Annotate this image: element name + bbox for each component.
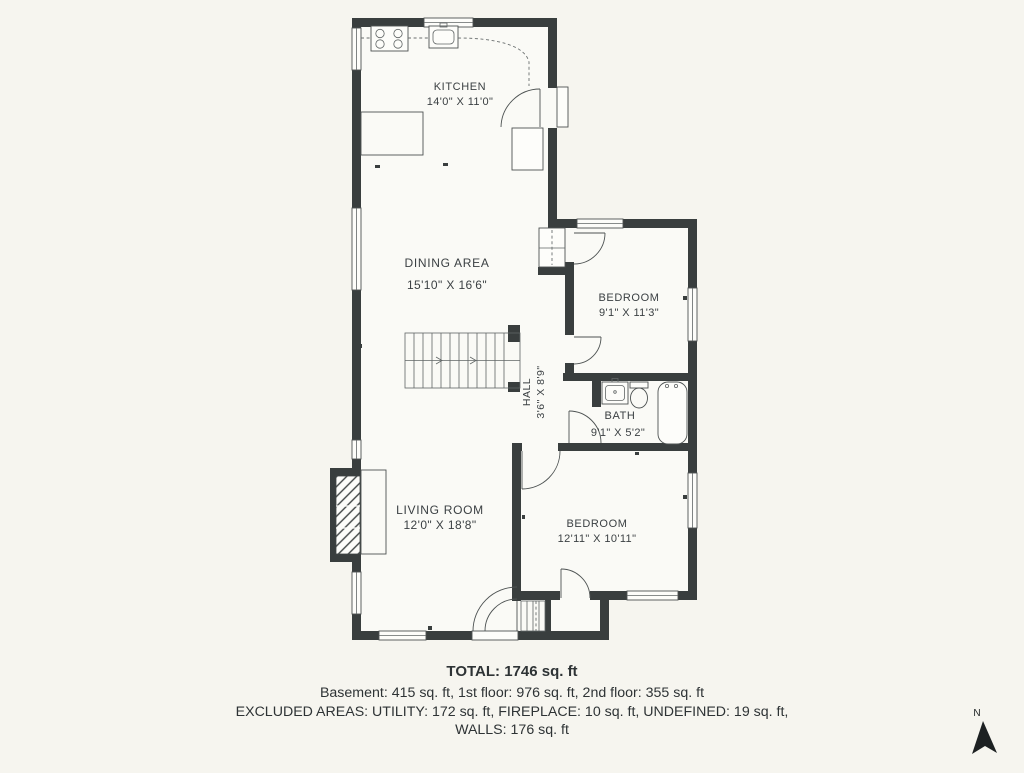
window [352,440,361,459]
bedroom1-dims: 9'1" X 11'3" [599,307,659,319]
window [352,28,361,70]
floors [352,18,697,640]
kitchen-label: KITCHEN [434,81,486,93]
kitchen-sink-icon [429,23,458,48]
bedroom1-label: BEDROOM [598,292,659,304]
total-area-text: TOTAL: 1746 sq. ft [0,663,1024,680]
walls-area-text: WALLS: 176 sq. ft [0,721,1024,740]
window [627,591,678,600]
door-threshold [472,631,518,640]
window [688,288,697,341]
dining-dims: 15'10" X 16'6" [407,278,487,292]
window [379,631,426,640]
hall-dims: 3'6" X 8'9" [535,365,547,418]
living-dims: 12'0" X 18'8" [403,518,476,532]
exterior-step [557,87,568,127]
bedroom-closet [539,228,565,267]
bedroom2-label: BEDROOM [566,518,627,530]
floors-area-text: Basement: 415 sq. ft, 1st floor: 976 sq.… [0,684,1024,703]
area-summary: TOTAL: 1746 sq. ft Basement: 415 sq. ft,… [0,663,1024,740]
bath-sink-icon [602,379,628,405]
excluded-area-text: EXCLUDED AREAS: UTILITY: 172 sq. ft, FIR… [0,703,1024,722]
window [577,219,623,228]
kitchen-dims: 14'0" X 11'0" [427,96,494,108]
kitchen-closet [512,128,543,170]
hall-label: HALL [521,378,533,406]
bathtub-icon [658,382,687,444]
stove-icon [371,26,408,51]
dining-label: DINING AREA [404,256,489,270]
window [352,208,361,290]
bath-dims: 9'1" X 5'2" [591,427,645,439]
living-label: LIVING ROOM [396,503,484,517]
floor-plan-canvas: KITCHEN 14'0" X 11'0" DINING AREA 15'10"… [0,0,1024,768]
window [688,473,697,528]
window [352,572,361,614]
bath-label: BATH [605,410,636,422]
bedroom2-dims: 12'11" X 10'11" [558,533,637,545]
floor-plan: KITCHEN 14'0" X 11'0" DINING AREA 15'10"… [0,0,1024,768]
